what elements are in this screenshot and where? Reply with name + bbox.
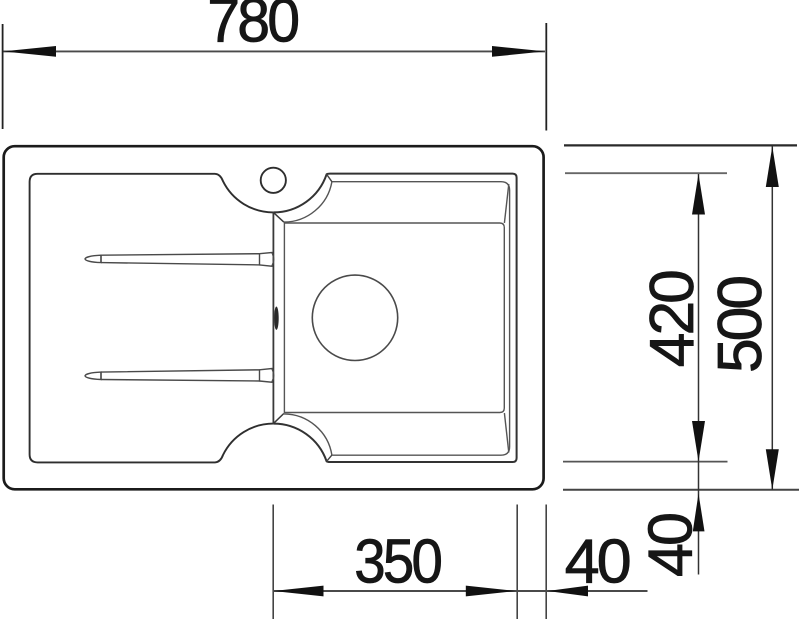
svg-text:780: 780 xyxy=(207,0,298,56)
svg-text:420: 420 xyxy=(638,271,707,368)
svg-text:350: 350 xyxy=(354,528,441,597)
svg-text:40: 40 xyxy=(565,528,631,597)
svg-text:40: 40 xyxy=(637,514,706,577)
svg-text:500: 500 xyxy=(706,276,775,373)
